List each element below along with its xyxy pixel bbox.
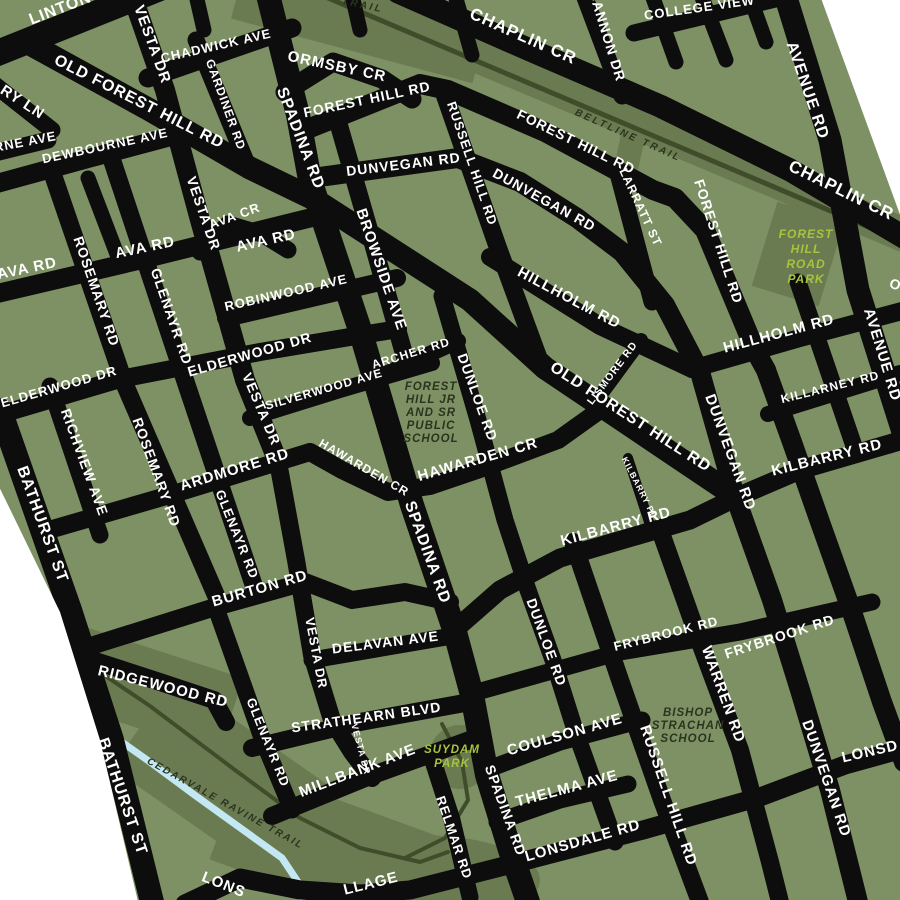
label-line: PUBLIC bbox=[407, 420, 456, 432]
label-line: SCHOOL bbox=[403, 433, 458, 445]
label-line: AND SR bbox=[405, 407, 456, 419]
label-line: FOREST bbox=[779, 227, 834, 241]
label-line: SUYDAM bbox=[424, 744, 480, 756]
label-line: HILL bbox=[791, 242, 822, 256]
label-line: PARK bbox=[787, 272, 824, 286]
road bbox=[196, 0, 204, 30]
neighbourhood-map: LINTONRY LNRNE AVEDEWBOURNE AVEOLD FORES… bbox=[0, 0, 900, 900]
label-line: STRACHAN bbox=[652, 720, 725, 732]
label-line: FOREST bbox=[405, 381, 458, 393]
label-line: ROAD bbox=[786, 257, 825, 271]
label-line: BISHOP bbox=[663, 707, 713, 719]
map-canvas: LINTONRY LNRNE AVEDEWBOURNE AVEOLD FORES… bbox=[0, 0, 900, 900]
label-line: SCHOOL bbox=[660, 733, 715, 745]
street-label: FORESTHILL JRAND SRPUBLICSCHOOL bbox=[403, 381, 458, 445]
label-line: HILL JR bbox=[406, 394, 456, 406]
label-line: PARK bbox=[434, 758, 470, 770]
